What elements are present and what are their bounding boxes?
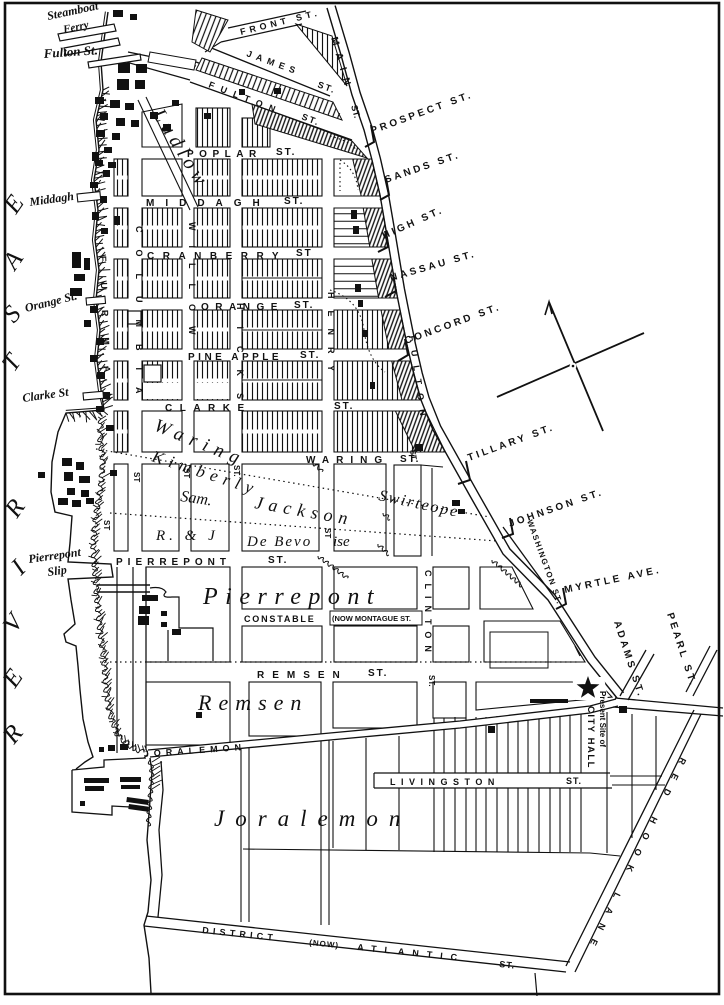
svg-text:ST.: ST. [400, 454, 420, 465]
svg-text:ST.: ST. [300, 350, 320, 361]
svg-text:Slip: Slip [46, 562, 67, 579]
svg-text:ORANGE: ORANGE [201, 302, 284, 313]
svg-text:ST: ST [102, 520, 111, 530]
svg-text:ST.: ST. [368, 668, 388, 679]
svg-text:Pierrepont: Pierrepont [202, 584, 381, 610]
svg-text:LIVINGSTON: LIVINGSTON [390, 777, 500, 787]
svg-text:PIERREPONT: PIERREPONT [116, 557, 231, 568]
svg-text:ST.: ST. [427, 675, 436, 687]
svg-text:ST.: ST. [284, 196, 304, 207]
svg-text:HENRY: HENRY [326, 292, 336, 383]
svg-text:CRANBERRY: CRANBERRY [147, 251, 287, 262]
svg-text:Present Site of: Present Site of [598, 691, 607, 747]
svg-text:CITY HALL: CITY HALL [585, 706, 596, 769]
svg-text:COLUMBIA: COLUMBIA [134, 226, 144, 411]
svg-text:MIDDAGH: MIDDAGH [146, 198, 271, 209]
svg-text:ise: ise [333, 534, 350, 550]
svg-text:CLINTON: CLINTON [423, 570, 433, 659]
svg-text:ST.: ST. [268, 555, 288, 566]
svg-text:ST.: ST. [334, 401, 354, 412]
svg-text:ST.: ST. [276, 147, 296, 158]
svg-text:ST.: ST. [294, 300, 314, 311]
svg-text:ST: ST [132, 472, 141, 482]
svg-text:(NOW MONTAGUE ST.: (NOW MONTAGUE ST. [332, 614, 411, 623]
svg-text:CONSTABLE: CONSTABLE [244, 614, 316, 624]
svg-text:R. & J: R. & J [155, 528, 219, 544]
svg-text:ST.: ST. [499, 959, 516, 971]
svg-text:ST: ST [296, 248, 313, 259]
svg-text:WILLOW: WILLOW [187, 222, 197, 350]
svg-text:REMSEN: REMSEN [257, 670, 348, 681]
svg-text:De Bevo: De Bevo [246, 534, 312, 550]
svg-text:PINE APPLE: PINE APPLE [188, 352, 282, 363]
svg-text:Joralemon: Joralemon [214, 806, 411, 831]
svg-text:CLARKE: CLARKE [165, 403, 252, 414]
svg-text:ST.: ST. [566, 776, 582, 786]
svg-text:Remsen: Remsen [197, 690, 308, 715]
